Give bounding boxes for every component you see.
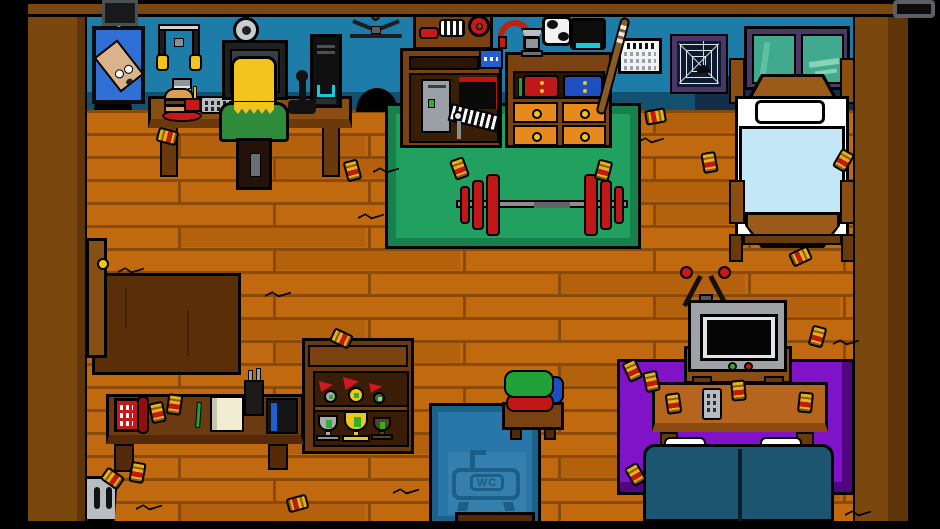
shirt-button xyxy=(583,81,587,85)
rug-streak xyxy=(187,310,189,356)
tub-leg xyxy=(503,502,515,511)
floor-plank-seam xyxy=(273,296,276,317)
floor-plank-shade xyxy=(276,251,460,270)
floor-plank-seam xyxy=(178,457,181,478)
spider-web-frame[interactable] xyxy=(672,36,726,92)
bat-tape xyxy=(618,31,625,36)
folded-shirt-red xyxy=(523,75,559,98)
phone-keys xyxy=(120,405,133,410)
burger[interactable] xyxy=(162,86,202,124)
drawer-knob xyxy=(532,109,542,119)
calendar-header xyxy=(624,43,656,49)
table-leg xyxy=(268,444,288,470)
cabinet-top-shelf xyxy=(409,56,479,70)
grinder-body xyxy=(524,37,540,50)
floor-plank-seam xyxy=(368,135,371,156)
folded-shirt-blue xyxy=(563,75,603,98)
tower-glow xyxy=(317,85,335,97)
cow-patch xyxy=(558,32,569,41)
floor-plank-seam xyxy=(368,319,371,340)
floor-plank-seam xyxy=(843,296,846,317)
shirt-button xyxy=(583,89,587,93)
faucet-icon xyxy=(470,450,475,470)
couch-cushion-divider xyxy=(738,449,742,521)
phone-handset xyxy=(137,396,149,434)
character-hair xyxy=(231,56,277,104)
chair-slot xyxy=(250,153,261,177)
floor-plank-seam xyxy=(273,480,276,501)
towel-green xyxy=(504,370,554,398)
chair xyxy=(236,138,272,190)
calendar-row xyxy=(624,66,656,70)
fries-box xyxy=(184,98,201,112)
beer-can[interactable] xyxy=(166,393,184,416)
bed-post xyxy=(729,180,745,224)
towel-stool[interactable] xyxy=(502,370,566,442)
webcam-lens xyxy=(242,26,251,35)
notepad[interactable] xyxy=(210,396,244,432)
floor-plank-seam xyxy=(368,227,371,248)
floor-plank-seam xyxy=(558,503,561,522)
calendar-row xyxy=(624,52,656,56)
medal-icon xyxy=(369,383,389,405)
game-viewport[interactable]: WC xyxy=(0,0,940,529)
wc-label: WC xyxy=(470,474,504,491)
antenna-ball xyxy=(680,266,693,279)
beer-can[interactable] xyxy=(665,392,683,415)
cassette-dots xyxy=(484,57,498,61)
trash-slot xyxy=(94,487,100,509)
floor-plank-seam xyxy=(368,273,371,294)
floor-plank-seam xyxy=(368,457,371,478)
trophy-icon xyxy=(371,417,395,443)
tv-button-red xyxy=(744,362,753,371)
beer-can[interactable] xyxy=(730,379,747,401)
tv-remote[interactable] xyxy=(702,388,722,420)
wall-hook xyxy=(174,38,184,47)
drawer-knob xyxy=(532,132,542,142)
floor-plank-seam xyxy=(463,250,466,271)
bed-leg xyxy=(841,234,855,262)
floor-plank-seam xyxy=(653,250,656,271)
tv-screen xyxy=(707,320,771,355)
face-mouth xyxy=(125,77,134,85)
antenna-ball xyxy=(718,266,731,279)
mini-screen xyxy=(459,77,499,109)
floor-plank-seam xyxy=(558,319,561,340)
floor-plank-seam xyxy=(748,273,751,294)
toy-steering-wheel xyxy=(468,15,490,37)
remote-buttons xyxy=(707,408,719,412)
cow-print-gamepad[interactable] xyxy=(542,16,572,46)
joystick-stick xyxy=(299,78,306,102)
frame-left xyxy=(28,4,85,529)
bat-tape xyxy=(620,25,627,30)
weight-plate xyxy=(472,180,484,230)
laptop-stripe xyxy=(271,403,277,431)
weight-plate xyxy=(614,186,624,224)
ear-cup xyxy=(156,54,169,71)
stool-leg xyxy=(510,428,522,440)
frame-top xyxy=(28,4,908,17)
wall-headphones[interactable] xyxy=(158,24,200,72)
spider-thread xyxy=(703,41,704,67)
drawer-knob xyxy=(580,109,590,119)
laptop-light xyxy=(576,43,600,48)
hanger-clip xyxy=(371,26,381,34)
joystick-base xyxy=(288,100,316,114)
toy-car xyxy=(419,27,439,39)
couch[interactable] xyxy=(643,444,834,522)
floor-plank-seam xyxy=(368,503,371,522)
rug-streak xyxy=(125,288,127,328)
shirt-button xyxy=(540,89,544,93)
cabinet-opening xyxy=(409,73,499,143)
phone-keys xyxy=(120,421,133,426)
mini-mic xyxy=(453,111,463,121)
tower-vent xyxy=(317,51,335,54)
drawer-knob xyxy=(580,132,590,142)
mini-mic-stand xyxy=(457,121,461,139)
weight-plate xyxy=(584,174,598,236)
media-cabinet[interactable] xyxy=(400,48,502,148)
floor-plank-seam xyxy=(178,181,181,202)
trophy-icon xyxy=(341,411,371,443)
webcam-icon xyxy=(233,17,259,43)
floor-plank-seam xyxy=(843,342,846,363)
corner-box xyxy=(893,0,935,18)
bed-leg xyxy=(729,234,743,262)
dark-rug xyxy=(95,276,238,372)
corner-box xyxy=(102,0,138,26)
weight-plate xyxy=(460,186,470,224)
tower-vent xyxy=(317,45,335,48)
floor-plank-seam xyxy=(463,342,466,363)
laptop-on-table[interactable] xyxy=(266,398,298,434)
floor-plank-seam xyxy=(653,158,656,179)
frame-bottom xyxy=(0,521,940,529)
stool-leg xyxy=(544,428,556,440)
beer-can[interactable] xyxy=(797,391,814,413)
mini-pc-button xyxy=(428,99,435,108)
grinder-base xyxy=(521,50,543,57)
floor-plank-shade xyxy=(181,504,365,522)
drawer[interactable] xyxy=(513,102,558,123)
pillow xyxy=(755,100,825,124)
cassette-stack xyxy=(479,49,503,69)
gamepad-icon xyxy=(439,19,465,37)
dresser-shelf xyxy=(513,71,605,99)
bat-tape xyxy=(616,38,623,43)
knife-block[interactable] xyxy=(244,380,264,416)
hanger-bar xyxy=(350,34,402,38)
wall-calendar[interactable] xyxy=(618,38,662,74)
laptop-closed[interactable] xyxy=(570,18,606,50)
calendar-row xyxy=(624,59,656,63)
bed-post xyxy=(840,180,856,224)
trophy-icon xyxy=(315,415,341,443)
shirt-button xyxy=(540,81,544,85)
trophy-cabinet[interactable] xyxy=(302,338,414,454)
notepad-spine xyxy=(212,398,217,430)
floor-plank-seam xyxy=(463,296,466,317)
remote-buttons xyxy=(707,394,719,398)
floor-plank-seam xyxy=(368,181,371,202)
door-knob xyxy=(97,258,109,270)
bed-rail xyxy=(743,234,842,245)
tv[interactable] xyxy=(688,300,787,372)
drawer[interactable] xyxy=(513,125,558,146)
tower-base xyxy=(316,99,336,104)
player-character[interactable] xyxy=(217,54,291,190)
ear-cup xyxy=(189,54,202,71)
cow-patch xyxy=(547,20,558,29)
weight-plate xyxy=(600,180,612,230)
medal-icon xyxy=(343,377,367,405)
trash-slot xyxy=(106,487,112,509)
picture-face xyxy=(94,39,145,92)
medal-icon xyxy=(319,381,339,405)
mini-pc-vent xyxy=(428,85,446,88)
drawer[interactable] xyxy=(562,125,606,146)
phone-keys xyxy=(120,413,133,418)
picture-frame[interactable] xyxy=(92,26,145,104)
dresser[interactable] xyxy=(505,52,612,148)
spider-icon xyxy=(699,65,708,73)
desk-leg xyxy=(322,124,340,177)
red-ear-cup xyxy=(498,36,507,49)
toy-box[interactable] xyxy=(413,12,493,50)
barbell-grip xyxy=(534,202,570,208)
weight-plate xyxy=(486,174,500,236)
tv-button-green xyxy=(728,362,737,371)
floor-plank-seam xyxy=(273,204,276,225)
left-door[interactable] xyxy=(86,238,107,358)
wheel-hub xyxy=(476,23,483,30)
blanket xyxy=(739,126,845,218)
floor-plank-shade xyxy=(181,228,365,247)
mini-pc-tower xyxy=(421,79,451,133)
frame-right xyxy=(855,4,908,529)
remote-buttons xyxy=(707,401,719,405)
floor-plank-seam xyxy=(653,342,656,363)
joystick[interactable] xyxy=(288,70,316,116)
cabinet-top-plank xyxy=(308,345,408,367)
